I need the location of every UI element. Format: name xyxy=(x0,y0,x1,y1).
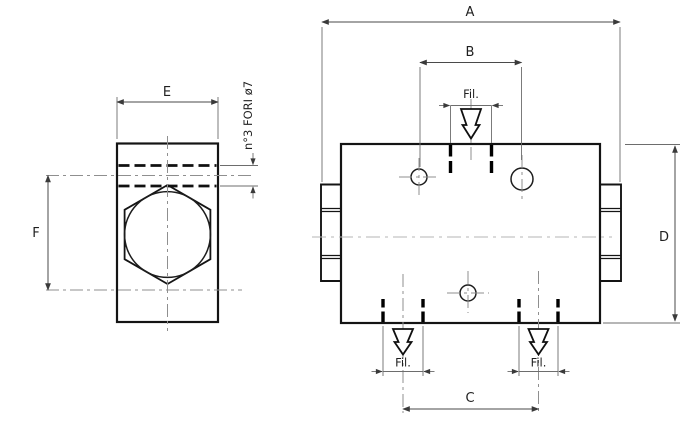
dim-label-b: B xyxy=(466,45,475,60)
dimension-c: C xyxy=(403,391,539,409)
thread-label-top: Fil. xyxy=(463,87,479,101)
drawing-canvas: E F n°3 FORI ø7 xyxy=(0,0,700,426)
dim-label-d: D xyxy=(659,230,669,245)
thread-port-bottom-right: Fil. xyxy=(508,326,570,376)
thread-arrow-icon xyxy=(529,329,549,355)
technical-drawing: E F n°3 FORI ø7 xyxy=(0,0,700,426)
thread-port-bottom-left: Fil. xyxy=(372,326,435,376)
left-port-boss xyxy=(321,185,341,282)
thread-arrow-icon xyxy=(461,109,481,139)
dimension-f: F xyxy=(32,176,48,291)
front-view-centerlines xyxy=(312,99,612,413)
front-view-body xyxy=(341,144,600,323)
holes-note-leader: n°3 FORI ø7 xyxy=(220,81,258,199)
front-view xyxy=(312,99,621,413)
thread-label-bottom-right: Fil. xyxy=(531,356,547,370)
thread-port-top: Fil. xyxy=(439,87,503,143)
dimension-d: D xyxy=(603,145,680,324)
dim-label-c: C xyxy=(465,391,474,406)
right-port-boss xyxy=(600,185,621,282)
dim-label-a: A xyxy=(466,5,475,20)
dimension-e: E xyxy=(117,85,218,139)
thread-label-bottom-left: Fil. xyxy=(395,356,411,370)
dim-label-e: E xyxy=(163,85,171,100)
thread-arrow-icon xyxy=(393,329,413,355)
holes-note: n°3 FORI ø7 xyxy=(241,81,255,150)
dim-label-f: F xyxy=(32,226,39,241)
bottom-thread-ticks xyxy=(383,299,558,322)
